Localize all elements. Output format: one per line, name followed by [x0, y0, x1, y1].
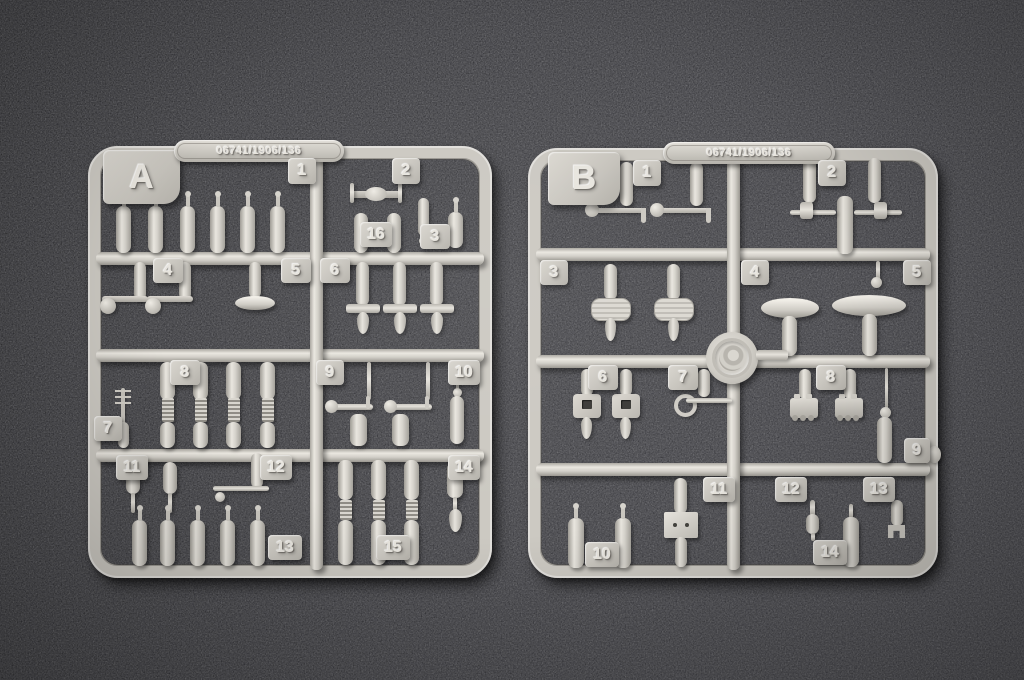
molded-part-emblem: [706, 332, 758, 384]
molded-part-capsule: [404, 460, 419, 500]
molded-part-ribbed: [340, 500, 352, 520]
molded-part-capsule: [877, 417, 892, 463]
molded-part-capsule: [163, 462, 177, 494]
molded-part-capsule: [226, 422, 241, 448]
part-number-tag: 6: [320, 258, 350, 283]
molded-part-ellipse: [235, 296, 275, 310]
molded-part-ellipse: [832, 295, 906, 316]
molded-part-ellipse: [761, 298, 819, 318]
part-number: 8: [181, 364, 190, 382]
molded-part-bar: [131, 493, 135, 513]
molded-part-capsule: [430, 262, 443, 306]
part-number: 11: [711, 481, 728, 499]
molded-part-bottle: [148, 206, 163, 253]
molded-part-ball: [871, 277, 882, 288]
molded-part-bottle: [190, 520, 205, 566]
molded-part-carriage: [790, 398, 818, 418]
part-number-tag: 4: [153, 258, 183, 283]
molded-part-bottle: [210, 206, 225, 253]
molded-part-davit: [102, 296, 148, 318]
part-number: 12: [782, 481, 800, 499]
part-number: 5: [913, 264, 922, 282]
molded-part-capsule: [862, 314, 877, 356]
molded-part-capsule: [674, 478, 687, 514]
sprue-a-letter-tab: A: [103, 150, 180, 204]
molded-part-capsule: [350, 414, 367, 446]
molded-part-bar: [426, 362, 430, 400]
molded-part-capsule: [690, 162, 703, 206]
sprue-a-mold-code-banner: 06741/1906/136: [174, 140, 344, 162]
molded-part-bar: [849, 504, 853, 518]
sprue-b-mold-code-banner: 06741/1906/136: [663, 142, 835, 164]
molded-part-ribbed: [406, 500, 418, 520]
part-number: 1: [298, 162, 307, 180]
part-number-tag: 5: [281, 258, 311, 283]
part-number-tag: 2: [392, 158, 420, 184]
part-number: 4: [751, 264, 760, 282]
part-number-tag: 1: [288, 158, 316, 184]
molded-part-capsule: [371, 460, 386, 500]
part-number-tag: 9: [316, 360, 344, 385]
molded-part-ribbed: [195, 398, 207, 422]
molded-part-ribbed: [228, 398, 240, 422]
part-number: 6: [599, 369, 608, 387]
molded-part-bar: [874, 202, 887, 219]
part-number: 11: [124, 459, 141, 477]
part-number: 8: [827, 369, 836, 387]
part-number: 14: [455, 459, 473, 477]
molded-part-bar: [213, 486, 269, 491]
molded-part-capsule: [260, 362, 275, 400]
molded-part-bottle: [568, 518, 584, 568]
molded-part-bottle: [132, 520, 147, 566]
molded-part-capsule: [604, 264, 617, 300]
molded-part-capsule: [620, 369, 632, 396]
part-number: 15: [384, 539, 402, 557]
molded-part-gun: [331, 404, 373, 410]
molded-part-capsule: [799, 369, 811, 399]
molded-part-capsule: [450, 396, 464, 444]
molded-part-carriage: [835, 398, 863, 418]
molded-part-gun: [390, 404, 432, 410]
molded-part-capsule: [338, 460, 353, 500]
molded-part-bottle: [220, 520, 235, 566]
part-number: 3: [431, 228, 440, 246]
part-number: 2: [828, 164, 837, 182]
molded-part-bottle: [448, 212, 463, 248]
part-number-tag: 3: [540, 260, 568, 285]
part-number-tag: 12: [775, 477, 807, 502]
molded-part-bar: [686, 398, 732, 403]
molded-part-davit: [147, 296, 193, 318]
molded-part-bar: [800, 202, 813, 219]
molded-part-ball: [215, 492, 225, 502]
molded-part-plate2: [664, 512, 698, 538]
part-number-tag: 13: [863, 477, 895, 502]
part-number-tag: 4: [741, 260, 769, 285]
molded-part-capsule: [667, 264, 680, 300]
part-number: 9: [326, 364, 335, 382]
part-number-tag: 11: [703, 477, 735, 502]
molded-part-capsule: [698, 369, 710, 397]
molded-part-bottle: [116, 206, 131, 253]
molded-part-capsule: [393, 262, 406, 306]
molded-part-bottle: [250, 520, 265, 566]
part-number: 13: [870, 481, 888, 499]
molded-part-capsule: [226, 362, 241, 400]
molded-part-capsule: [193, 422, 208, 448]
part-number: 1: [643, 164, 652, 182]
part-number-tag: 7: [668, 365, 698, 390]
sprue-a-rail-h2: [96, 349, 484, 362]
sprue-a: A 06741/1906/136 12163456789101112141315: [88, 146, 492, 578]
molded-part-bottle: [180, 206, 195, 253]
molded-part-capsule: [891, 500, 903, 526]
molded-part-ribbed: [262, 398, 274, 422]
molded-part-bottle: [160, 520, 175, 566]
molded-part-capsule: [392, 414, 409, 446]
sprue-b-letter: B: [572, 159, 597, 198]
molded-part-capsule: [260, 422, 275, 448]
molded-part-bar: [885, 368, 888, 410]
part-number-tag: 14: [813, 540, 847, 565]
part-number-tag: 7: [94, 416, 122, 441]
part-number-tag: 16: [360, 222, 392, 247]
part-number: 10: [455, 364, 473, 382]
part-number-tag: 8: [170, 360, 200, 385]
sprue-a-letter: A: [129, 158, 154, 197]
part-number: 3: [550, 264, 559, 282]
molded-part-capsule: [249, 262, 261, 298]
part-number: 7: [104, 420, 113, 438]
molded-part-bar: [398, 183, 402, 203]
part-number-tag: 12: [260, 455, 292, 480]
part-number-tag: 14: [448, 455, 480, 480]
sprue-b-letter-tab: B: [548, 152, 620, 205]
sprue-b-mold-code: 06741/1906/136: [706, 147, 791, 159]
molded-part-capsule: [675, 537, 687, 567]
sprue-b: B 06741/1906/136 1234567891112131014: [528, 148, 938, 578]
molded-part-bar: [756, 350, 788, 360]
part-number: 12: [267, 459, 285, 477]
molded-part-clamp: [573, 394, 601, 418]
molded-part-capsule: [806, 514, 819, 534]
part-number: 9: [913, 442, 922, 460]
part-number-tag: 9: [904, 438, 930, 463]
part-number-tag: 3: [420, 224, 450, 249]
molded-part-pipe: [657, 208, 709, 213]
part-number: 13: [276, 539, 294, 557]
sprue-a-mold-code: 06741/1906/136: [216, 145, 301, 157]
molded-part-pipe: [592, 208, 644, 213]
part-number-tag: 10: [585, 542, 619, 567]
molded-part-bottle: [240, 206, 255, 253]
molded-part-capsule: [160, 422, 175, 448]
part-number: 4: [164, 262, 173, 280]
molded-part-capsule: [868, 158, 881, 203]
part-number-tag: 2: [818, 160, 846, 186]
sprue-photo: A 06741/1906/136 12163456789101112141315…: [0, 0, 1024, 680]
part-number: 16: [367, 226, 385, 244]
part-number-tag: 10: [448, 360, 480, 385]
molded-part-capsule: [837, 196, 853, 254]
part-number-tag: 6: [588, 365, 618, 390]
molded-part-ribbed: [373, 500, 385, 520]
part-number-tag: 5: [903, 260, 931, 285]
molded-part-capsule: [356, 262, 369, 306]
molded-part-bar: [790, 210, 836, 215]
part-number-tag: 8: [816, 365, 846, 390]
molded-part-ribbed: [162, 398, 174, 422]
molded-part-capsule: [134, 262, 146, 300]
part-number-tag: 13: [268, 535, 302, 560]
part-number: 5: [292, 262, 301, 280]
part-number: 2: [402, 162, 411, 180]
part-number: 14: [821, 544, 839, 562]
part-number: 7: [679, 369, 688, 387]
molded-part-bar: [367, 362, 371, 400]
part-number: 6: [331, 262, 340, 280]
molded-part-capsule: [803, 158, 816, 203]
part-number-tag: 1: [633, 160, 661, 186]
molded-part-bottle: [270, 206, 285, 253]
part-number-tag: 11: [116, 455, 148, 480]
molded-part-bar: [350, 183, 354, 203]
molded-part-capsule: [338, 520, 353, 565]
molded-part-capsule: [620, 162, 633, 206]
molded-part-clamp: [612, 394, 640, 418]
part-number: 10: [593, 546, 611, 564]
molded-part-axle: [350, 191, 402, 198]
part-number-tag: 15: [376, 535, 410, 560]
